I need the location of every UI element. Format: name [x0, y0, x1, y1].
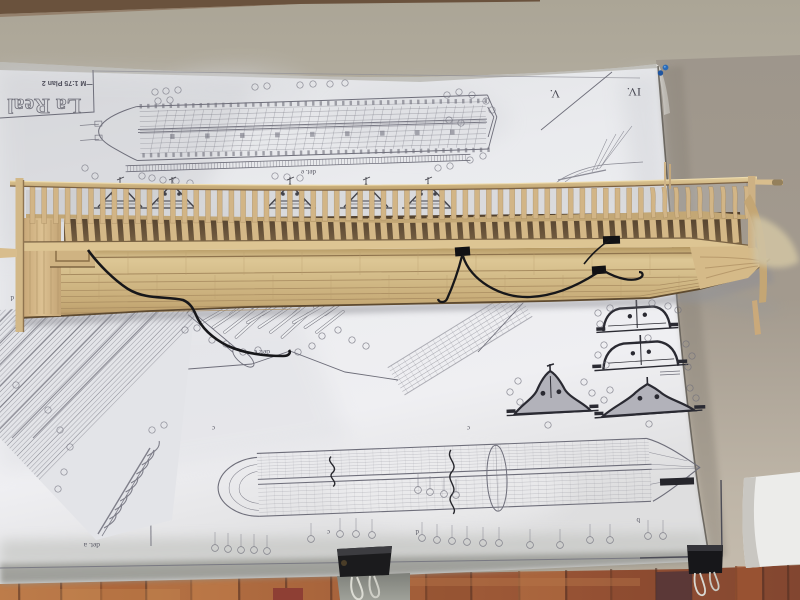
svg-text:V.: V. [550, 87, 560, 101]
svg-text:d: d [10, 294, 14, 302]
svg-text:La Real: La Real [7, 94, 81, 118]
svg-text:c: c [467, 424, 470, 432]
svg-text:IV.: IV. [627, 85, 641, 99]
svg-text:c: c [327, 528, 330, 536]
svg-text:b: b [636, 516, 640, 524]
svg-text:det. a: det. a [83, 541, 100, 550]
svg-text:d: d [415, 528, 419, 536]
svg-text:det. e: det. e [301, 168, 316, 176]
svg-text:c: c [212, 424, 215, 432]
svg-text:M 1:75 Plan 2: M 1:75 Plan 2 [42, 79, 86, 86]
